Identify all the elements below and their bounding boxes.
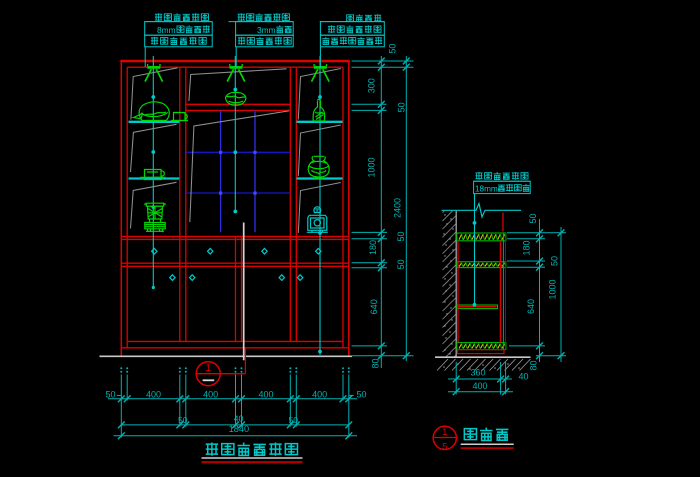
svg-text:18mm: 18mm <box>475 184 498 193</box>
svg-text:2400: 2400 <box>393 198 403 218</box>
svg-text:50: 50 <box>397 102 407 112</box>
svg-text:50: 50 <box>387 44 397 54</box>
svg-text:50: 50 <box>356 389 366 399</box>
svg-text:50: 50 <box>396 259 406 269</box>
svg-text:5: 5 <box>442 442 447 453</box>
svg-text:1000: 1000 <box>367 157 377 177</box>
svg-text:40: 40 <box>234 414 244 424</box>
svg-text:50: 50 <box>396 231 406 241</box>
svg-text:400: 400 <box>258 389 273 399</box>
svg-text:50: 50 <box>105 389 115 399</box>
svg-text:400: 400 <box>146 389 161 399</box>
svg-text:1840: 1840 <box>229 424 249 434</box>
svg-text:180: 180 <box>522 240 532 255</box>
svg-text:1000: 1000 <box>548 279 558 299</box>
svg-text:1: 1 <box>205 362 211 374</box>
svg-text:40: 40 <box>518 372 528 382</box>
svg-text:1: 1 <box>442 427 447 438</box>
svg-text:50: 50 <box>550 256 560 266</box>
svg-text:8mm: 8mm <box>157 25 176 35</box>
svg-text:400: 400 <box>472 381 487 391</box>
svg-text:80: 80 <box>529 360 539 370</box>
svg-text:50: 50 <box>178 415 188 425</box>
svg-text:300: 300 <box>367 78 377 93</box>
svg-text:50: 50 <box>528 213 538 223</box>
svg-text:400: 400 <box>203 389 218 399</box>
svg-text:640: 640 <box>369 299 379 314</box>
svg-text:3mm: 3mm <box>257 25 276 35</box>
svg-text:400: 400 <box>312 389 327 399</box>
svg-text:640: 640 <box>526 299 536 314</box>
svg-text:180: 180 <box>368 240 378 255</box>
svg-text:80: 80 <box>371 358 381 368</box>
svg-text:360: 360 <box>470 368 485 378</box>
svg-text:50: 50 <box>289 415 299 425</box>
